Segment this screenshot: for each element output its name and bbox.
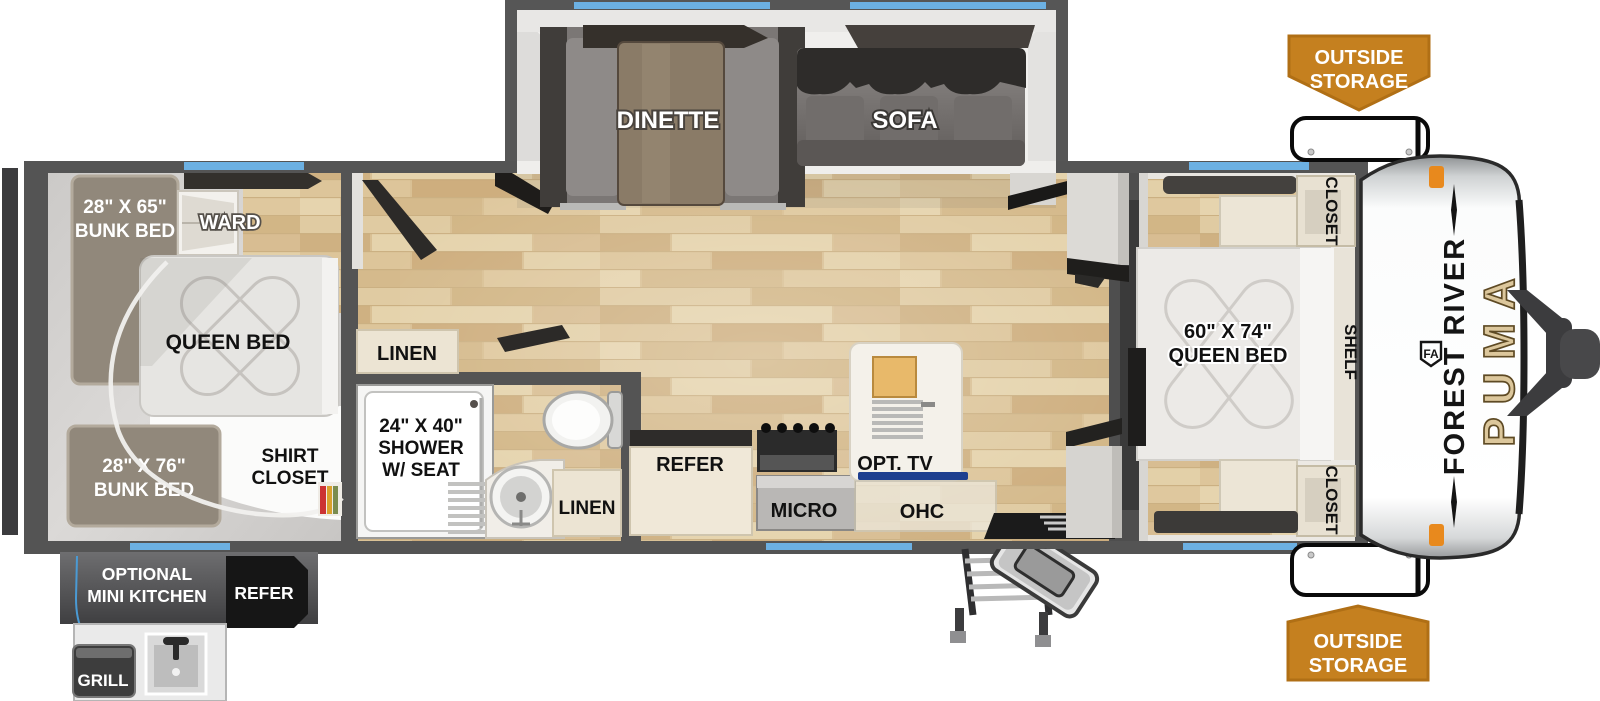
svg-text:SHIRT: SHIRT: [262, 446, 319, 467]
svg-text:MINI KITCHEN: MINI KITCHEN: [87, 586, 207, 606]
svg-text:OUTSIDE: OUTSIDE: [1314, 631, 1403, 653]
svg-text:QUEEN BED: QUEEN BED: [1169, 345, 1288, 367]
svg-text:MICRO: MICRO: [771, 500, 838, 522]
svg-text:STORAGE: STORAGE: [1310, 71, 1409, 93]
svg-text:REFER: REFER: [656, 454, 724, 476]
svg-text:CLOSET: CLOSET: [1322, 466, 1341, 536]
svg-text:CLOSET: CLOSET: [1322, 177, 1341, 247]
svg-text:DINETTE: DINETTE: [617, 107, 720, 134]
svg-text:WARD: WARD: [199, 212, 260, 234]
svg-text:LINEN: LINEN: [559, 498, 616, 519]
svg-text:W/ SEAT: W/ SEAT: [382, 460, 460, 481]
svg-text:CLOSET: CLOSET: [251, 468, 328, 489]
svg-text:SHELF: SHELF: [1341, 324, 1360, 380]
svg-text:OPT. TV: OPT. TV: [857, 453, 933, 475]
svg-text:24" X 40": 24" X 40": [379, 416, 463, 437]
svg-text:SOFA: SOFA: [872, 107, 937, 134]
svg-text:LINEN: LINEN: [377, 343, 437, 365]
svg-text:SHOWER: SHOWER: [378, 438, 464, 459]
svg-text:FA: FA: [1423, 347, 1439, 361]
svg-text:60" X 74": 60" X 74": [1184, 321, 1272, 343]
svg-text:STORAGE: STORAGE: [1309, 655, 1408, 677]
svg-text:FOREST RIVER: FOREST RIVER: [1439, 237, 1471, 475]
svg-text:28" X 65": 28" X 65": [83, 197, 167, 218]
svg-text:OHC: OHC: [900, 501, 944, 523]
svg-text:REFER: REFER: [234, 583, 294, 603]
svg-text:OPTIONAL: OPTIONAL: [102, 564, 193, 584]
svg-text:GRILL: GRILL: [78, 671, 129, 690]
svg-text:QUEEN BED: QUEEN BED: [166, 331, 291, 354]
svg-text:OUTSIDE: OUTSIDE: [1315, 47, 1404, 69]
svg-text:BUNK BED: BUNK BED: [75, 221, 175, 242]
